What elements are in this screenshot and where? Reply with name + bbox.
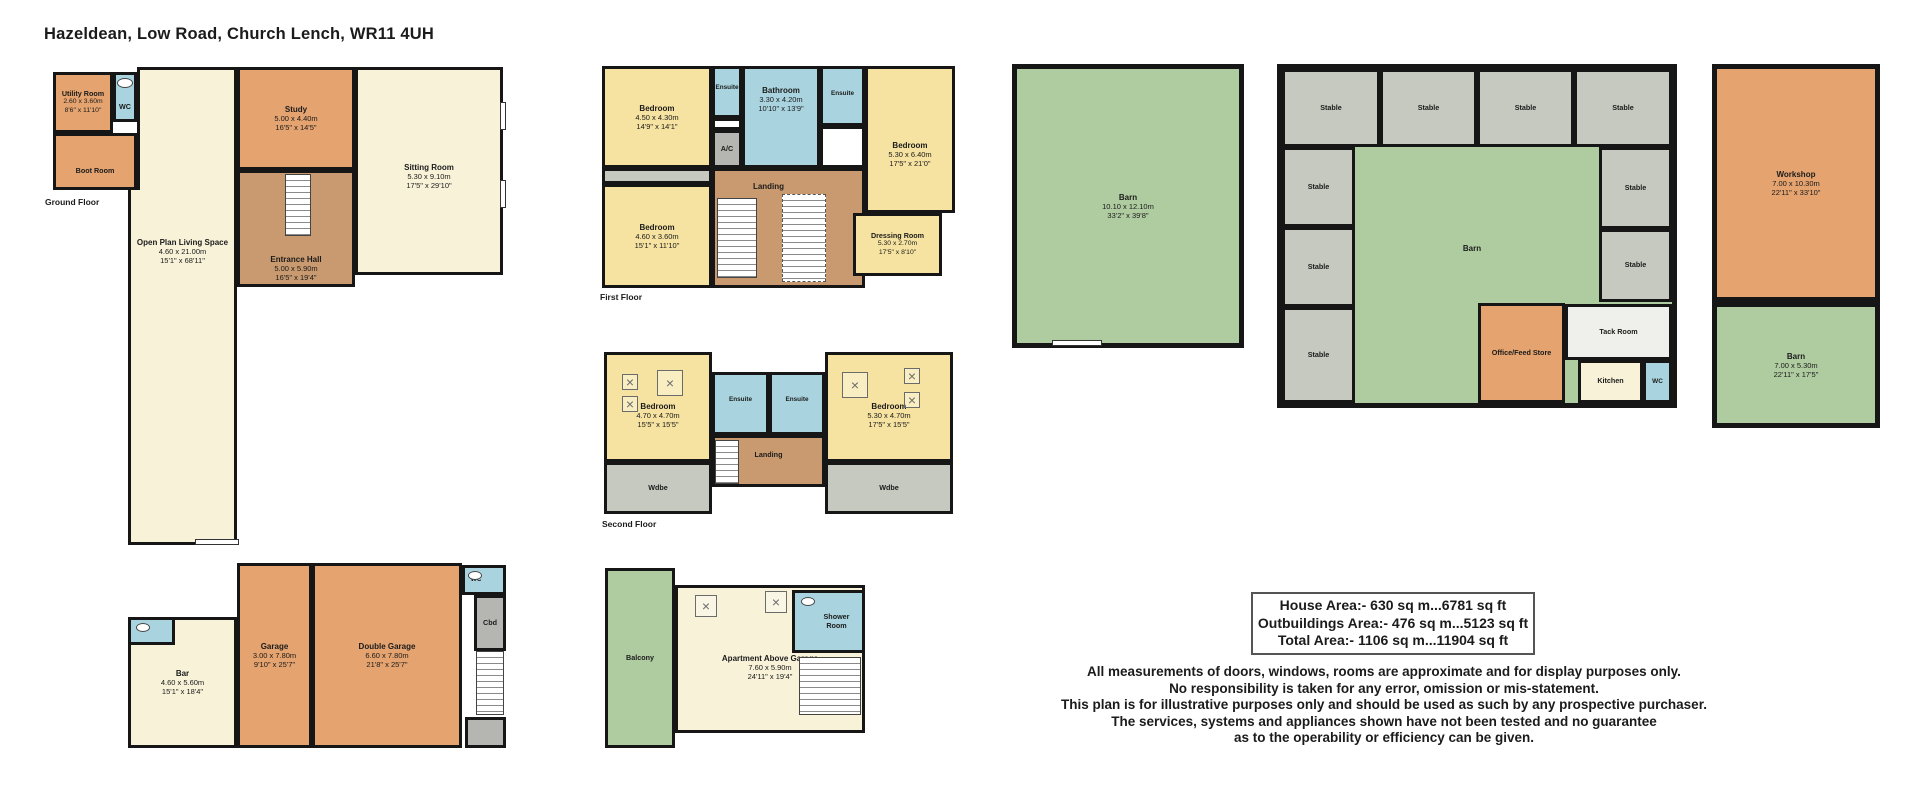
room-name-label: Garage xyxy=(253,642,296,651)
room-name-label: Wdbe xyxy=(879,484,899,493)
room-ensuite: Ensuite xyxy=(712,372,769,435)
toilet-icon xyxy=(801,597,815,606)
disclaimer-text: All measurements of doors, windows, room… xyxy=(1034,664,1734,747)
room-dimensions: 4.60 x 21.00m xyxy=(137,247,228,256)
room-dimensions: 10'10" x 13'9" xyxy=(758,104,803,113)
room-name-label: Stable xyxy=(1625,261,1647,270)
outbuildings-area-line: Outbuildings Area:- 476 sq m...5123 sq f… xyxy=(1255,615,1531,633)
room-stable: Stable xyxy=(1599,229,1672,302)
room-ensuite: Ensuite xyxy=(769,372,825,435)
room-name-label: Stable xyxy=(1308,183,1330,192)
room-dimensions: 17'5" x 8'10" xyxy=(871,249,924,258)
room-dimensions: 5.00 x 5.90m xyxy=(270,264,321,273)
plan-first-floor: Bedroom4.50 x 4.30m14'9" x 14'1"EnsuiteA… xyxy=(602,66,954,288)
room-name-label: Landing xyxy=(755,451,783,460)
room-dimensions: 5.00 x 4.40m xyxy=(274,114,317,123)
room-cbd: Cbd xyxy=(474,595,506,651)
plan-second-floor: Bedroom4.70 x 4.70m15'5" x 15'5"WdbeEnsu… xyxy=(602,352,954,514)
bed-icon xyxy=(765,591,787,613)
room-area xyxy=(820,126,865,168)
room-name-label: Shower Room xyxy=(824,613,850,630)
room-name-label: A/C xyxy=(721,145,733,154)
room-dimensions: 8'6" x 11'10" xyxy=(62,107,104,116)
room-bedroom: Bedroom5.30 x 6.40m17'5" x 21'0" xyxy=(865,66,955,213)
bed-icon xyxy=(904,392,920,408)
room-wdbe: Wdbe xyxy=(825,462,953,514)
disclaimer-line: The services, systems and appliances sho… xyxy=(1034,714,1734,731)
room-dressing-room: Dressing Room5.30 x 2.70m17'5" x 8'10" xyxy=(853,213,942,276)
room-a-c: A/C xyxy=(712,130,742,168)
bed-icon xyxy=(657,370,683,396)
room-name-label: Ensuite xyxy=(729,396,752,404)
disclaimer-line: as to the operability or efficiency can … xyxy=(1034,730,1734,747)
room-dimensions: 9'10" x 25'7" xyxy=(253,660,296,669)
room-stable: Stable xyxy=(1599,147,1672,229)
room-utility-room: Utility Room2.60 x 3.60m8'6" x 11'10" xyxy=(53,72,113,133)
room-kitchen: Kitchen xyxy=(1578,360,1643,403)
room-name-label: Utility Room xyxy=(62,90,104,99)
room-open-plan-living-space: Open Plan Living Space4.60 x 21.00m15'1"… xyxy=(128,190,237,545)
room-name-label: Barn xyxy=(1102,193,1154,202)
room-dimensions: 6.60 x 7.80m xyxy=(359,651,416,660)
room-area xyxy=(465,717,506,748)
room-name-label: Stable xyxy=(1308,263,1330,272)
room-wc: WC xyxy=(1643,360,1672,403)
stairs-icon xyxy=(717,198,757,278)
room-balcony: Balcony xyxy=(605,568,675,748)
room-name-label: WC xyxy=(119,103,131,112)
window xyxy=(500,102,506,130)
room-wc: WC xyxy=(462,565,506,595)
room-area xyxy=(128,617,175,645)
toilet-icon xyxy=(117,78,133,88)
room-sitting-room: Sitting Room5.30 x 9.10m17'5" x 29'10" xyxy=(355,67,503,275)
room-name-label: Barn xyxy=(1774,352,1819,361)
room-name-label: Balcony xyxy=(626,654,654,663)
room-bathroom: Bathroom3.30 x 4.20m10'10" x 13'9" xyxy=(742,66,820,168)
room-dimensions: 4.60 x 5.60m xyxy=(161,678,204,687)
room-dimensions: 10.10 x 12.10m xyxy=(1102,202,1154,211)
room-name-label: Barn xyxy=(1463,244,1481,253)
window xyxy=(500,180,506,208)
ground-floor-label: Ground Floor xyxy=(45,197,99,207)
room-name-label: Kitchen xyxy=(1597,377,1623,386)
room-name-label: Wdbe xyxy=(648,484,668,493)
room-stable: Stable xyxy=(1477,69,1574,147)
plan-stables: StableStableStableStableStableStableStab… xyxy=(1277,64,1677,408)
stairs-icon xyxy=(782,194,826,282)
room-dimensions: 16'5" x 19'4" xyxy=(270,273,321,282)
room-name-label: Bathroom xyxy=(758,86,803,95)
room-dimensions: 4.50 x 4.30m xyxy=(635,113,678,122)
room-name-label: WC xyxy=(1652,378,1663,386)
room-dimensions: 5.30 x 2.70m xyxy=(871,240,924,249)
room-name-label: Stable xyxy=(1308,351,1330,360)
first-floor-label: First Floor xyxy=(600,292,642,302)
room-stable: Stable xyxy=(1282,307,1355,403)
stairs-icon xyxy=(715,440,739,484)
room-dimensions: 7.00 x 10.30m xyxy=(1772,179,1821,188)
room-dimensions: 14'9" x 14'1" xyxy=(635,122,678,131)
room-name-label: Cbd xyxy=(483,619,497,628)
room-stable: Stable xyxy=(1574,69,1672,147)
room-garage: Garage3.00 x 7.80m9'10" x 25'7" xyxy=(237,563,312,748)
room-barn: Barn xyxy=(1427,237,1517,259)
room-name-label: Landing xyxy=(753,182,784,191)
plan-workshop-barn: Workshop7.00 x 10.30m22'11" x 33'10"Barn… xyxy=(1712,64,1880,428)
total-area-line: Total Area:- 1106 sq m...11904 sq ft xyxy=(1255,632,1531,650)
room-dimensions: 3.00 x 7.80m xyxy=(253,651,296,660)
room-name-label: Boot Room xyxy=(76,167,115,176)
room-barn: Barn10.10 x 12.10m33'2" x 39'8" xyxy=(1012,64,1244,348)
room-dimensions: 15'1" x 18'4" xyxy=(161,687,204,696)
room-ensuite: Ensuite xyxy=(712,66,742,118)
room-name-label: Bar xyxy=(161,669,204,678)
disclaimer-line: No responsibility is taken for any error… xyxy=(1034,681,1734,698)
room-study: Study5.00 x 4.40m16'5" x 14'5" xyxy=(237,67,355,170)
room-name-label: Entrance Hall xyxy=(270,255,321,264)
room-name-label: Bedroom xyxy=(635,104,678,113)
stairs-icon xyxy=(476,651,504,715)
room-name-label: Stable xyxy=(1612,104,1634,113)
plan-ground-floor: Utility Room2.60 x 3.60m8'6" x 11'10"WCB… xyxy=(45,62,515,562)
room-area xyxy=(602,168,712,184)
room-bedroom: Bedroom4.60 x 3.60m15'1" x 11'10" xyxy=(602,184,712,288)
room-name-label: Open Plan Living Space xyxy=(137,238,228,247)
room-dimensions: 33'2" x 39'8" xyxy=(1102,211,1154,220)
room-dimensions: 5.30 x 9.10m xyxy=(404,172,454,181)
window xyxy=(195,539,239,545)
room-name-label: Ensuite xyxy=(831,90,854,98)
disclaimer-line: All measurements of doors, windows, room… xyxy=(1034,664,1734,681)
room-name-label: Stable xyxy=(1515,104,1537,113)
room-name-label: Bedroom xyxy=(635,223,680,232)
room-office-feed-store: Office/Feed Store xyxy=(1478,303,1565,403)
room-name-label: Bedroom xyxy=(888,141,931,150)
room-dimensions: 15'1" x 11'10" xyxy=(635,241,680,250)
room-name-label: Sitting Room xyxy=(404,163,454,172)
room-tack-room: Tack Room xyxy=(1565,304,1672,360)
room-area xyxy=(712,118,742,130)
room-dimensions: 21'8" x 25'7" xyxy=(359,660,416,669)
room-dimensions: 4.70 x 4.70m xyxy=(636,411,679,420)
room-name-label: Tack Room xyxy=(1599,328,1637,337)
plan-garage: Bar4.60 x 5.60m15'1" x 18'4"Garage3.00 x… xyxy=(128,563,510,750)
room-name-label: Study xyxy=(274,105,317,114)
room-name-label: Ensuite xyxy=(715,84,738,92)
room-dimensions: 4.60 x 3.60m xyxy=(635,232,680,241)
room-stable: Stable xyxy=(1282,147,1355,227)
room-name-label: Stable xyxy=(1418,104,1440,113)
room-stable: Stable xyxy=(1380,69,1477,147)
room-boot-room: Boot Room xyxy=(53,133,137,190)
room-name-label: Bedroom xyxy=(636,402,679,411)
room-workshop: Workshop7.00 x 10.30m22'11" x 33'10" xyxy=(1712,64,1880,302)
room-name-label: Stable xyxy=(1625,184,1647,193)
room-dimensions: 2.60 x 3.60m xyxy=(62,98,104,107)
bed-icon xyxy=(695,595,717,617)
stairs-icon xyxy=(285,174,311,236)
room-name-label: Ensuite xyxy=(785,396,808,404)
room-dimensions: 16'5" x 14'5" xyxy=(274,123,317,132)
bed-icon xyxy=(622,396,638,412)
room-dimensions: 7.00 x 5.30m xyxy=(1774,361,1819,370)
room-name-label: Office/Feed Store xyxy=(1492,349,1552,358)
plan-apartment: BalconyApartment Above Garage7.60 x 5.90… xyxy=(605,563,867,751)
room-stable: Stable xyxy=(1282,227,1355,307)
room-dimensions: 5.30 x 6.40m xyxy=(888,150,931,159)
toilet-icon xyxy=(136,623,150,632)
room-dimensions: 22'11" x 17'5" xyxy=(1774,370,1819,379)
room-wdbe: Wdbe xyxy=(604,462,712,514)
room-dimensions: 17'5" x 15'5" xyxy=(867,420,910,429)
stairs-icon xyxy=(799,657,861,715)
disclaimer-line: This plan is for illustrative purposes o… xyxy=(1034,697,1734,714)
floorplan-page: Hazeldean, Low Road, Church Lench, WR11 … xyxy=(0,0,1920,790)
page-title: Hazeldean, Low Road, Church Lench, WR11 … xyxy=(44,25,434,44)
bed-icon xyxy=(622,374,638,390)
room-dimensions: 17'5" x 21'0" xyxy=(888,159,931,168)
window xyxy=(1052,340,1102,346)
area-summary-box: House Area:- 630 sq m...6781 sq ft Outbu… xyxy=(1251,592,1535,655)
toilet-icon xyxy=(468,571,482,580)
room-name-label: Workshop xyxy=(1772,170,1821,179)
room-bedroom: Bedroom5.30 x 4.70m17'5" x 15'5" xyxy=(825,352,953,462)
room-bedroom: Bedroom4.50 x 4.30m14'9" x 14'1" xyxy=(602,66,712,168)
room-name-label: Dressing Room xyxy=(871,232,924,241)
room-barn: Barn7.00 x 5.30m22'11" x 17'5" xyxy=(1712,302,1880,428)
room-bedroom: Bedroom4.70 x 4.70m15'5" x 15'5" xyxy=(604,352,712,462)
room-dimensions: 15'5" x 15'5" xyxy=(636,420,679,429)
plan-barn: Barn10.10 x 12.10m33'2" x 39'8" xyxy=(1012,64,1244,348)
room-dimensions: 5.30 x 4.70m xyxy=(867,411,910,420)
house-area-line: House Area:- 630 sq m...6781 sq ft xyxy=(1255,597,1531,615)
room-name-label: Stable xyxy=(1320,104,1342,113)
bed-icon xyxy=(904,368,920,384)
room-dimensions: 15'1" x 68'11" xyxy=(137,256,228,265)
room-stable: Stable xyxy=(1282,69,1380,147)
room-dimensions: 17'5" x 29'10" xyxy=(404,181,454,190)
bed-icon xyxy=(842,372,868,398)
room-dimensions: 3.30 x 4.20m xyxy=(758,95,803,104)
room-name-label: Double Garage xyxy=(359,642,416,651)
second-floor-label: Second Floor xyxy=(602,519,656,529)
room-area xyxy=(137,67,237,190)
room-dimensions: 22'11" x 33'10" xyxy=(1772,188,1821,197)
room-ensuite: Ensuite xyxy=(820,66,865,126)
room-double-garage: Double Garage6.60 x 7.80m21'8" x 25'7" xyxy=(312,563,462,748)
